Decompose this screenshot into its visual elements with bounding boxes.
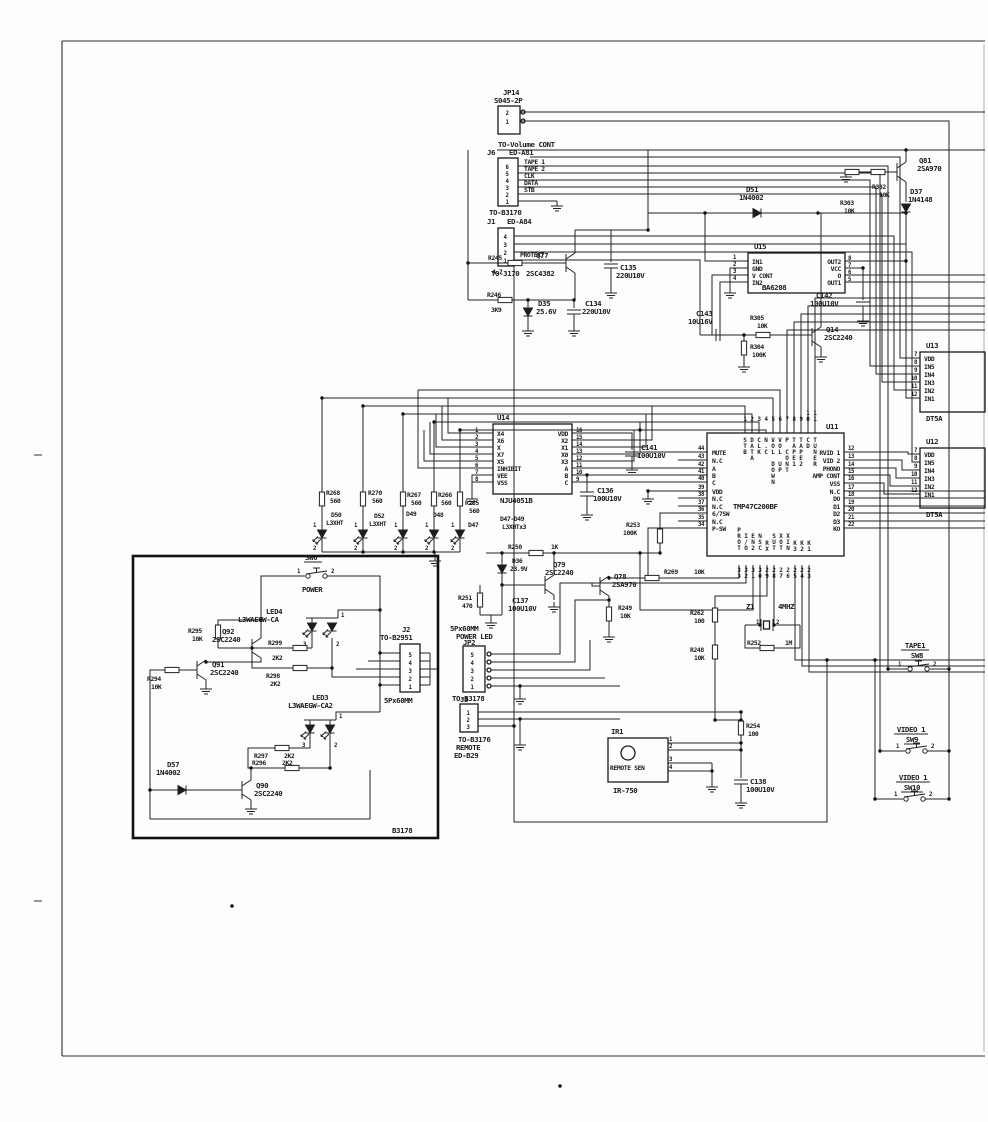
u11-pin1-label: STB [742, 437, 749, 455]
u15-pin4-label: IN2 [752, 279, 763, 287]
sw8-label: TAPE1 [905, 641, 926, 650]
sw10-label: VIDEO 1 [899, 773, 928, 782]
sw10-pin1-num: 1 [894, 792, 898, 798]
r294-ref: R294 [147, 675, 161, 683]
u13-part: DT5A [926, 414, 943, 423]
ground-icon [514, 740, 526, 750]
sw10-switch-symbol [904, 791, 925, 801]
u11-pin24-num: 24 [799, 567, 806, 579]
r270-value: 560 [372, 497, 383, 505]
led3-part: L3WAEGW-CA2 [288, 701, 333, 710]
q81-transistor-symbol [897, 162, 906, 182]
r299-ref: R299 [268, 639, 282, 647]
ir1-sensor-icon [621, 746, 635, 760]
r294-value: 10K [151, 683, 162, 691]
u11-nc43-label: N.C [712, 457, 723, 465]
r270-symbol [360, 492, 365, 506]
j6-note: TO-B3170 [489, 208, 521, 217]
d35-zener-symbol [524, 308, 533, 316]
ground-icon [581, 510, 593, 520]
d50-ref: D50 [331, 511, 342, 519]
r268-symbol [319, 492, 324, 506]
r248-symbol [712, 645, 717, 659]
j2-pin4-num: 4 [408, 661, 412, 667]
ground-icon [603, 632, 615, 642]
d36-zener-symbol [498, 565, 507, 573]
j6-pin1-num: 1 [505, 200, 509, 206]
d52-pin2-num: 2 [354, 546, 357, 552]
jp2-pin5-num: 5 [470, 653, 474, 659]
r295-value: 10K [192, 635, 203, 643]
d37-diode-symbol [902, 204, 911, 212]
u11-pin3-label: CLK [756, 437, 763, 455]
r253-symbol [657, 529, 662, 543]
ground-icon [568, 326, 580, 336]
u11-pin30-label: NSC [757, 533, 764, 551]
schematic-canvas: JP14 S045-2P 2 1 TO-Volume CONT J6 ED-A8… [0, 0, 988, 1122]
r266-ref: R266 [438, 491, 452, 499]
inset-board-ref: B3178 [392, 826, 412, 835]
ground-icon [857, 316, 869, 326]
u11-pin22-num: 22 [848, 522, 854, 528]
u14-vss-label: VSS [497, 479, 508, 487]
u11-pin40-num: 40 [698, 476, 705, 482]
ir1-part: IR-750 [613, 786, 637, 795]
q14-part: 2SC2240 [824, 333, 852, 342]
d52-part: L3XHT [369, 520, 387, 528]
u11-vid2-label: VID 2 [823, 457, 841, 465]
r262-value: 100 [694, 617, 705, 625]
j2-pin3-num: 3 [408, 669, 412, 675]
r302-ref: R302 [872, 183, 886, 191]
u11-pin23-label: K1 [806, 540, 813, 552]
u13-pin9-num: 9 [914, 368, 918, 374]
u12-in4-label: IN4 [924, 467, 935, 475]
component-outlines [133, 106, 985, 838]
u11-pin11-label: TUNER [812, 437, 819, 467]
u11-pin4-label: N.C [763, 437, 770, 455]
u12-pin9-num: 9 [914, 464, 918, 470]
led4-part: L3WAEGW-CA [238, 615, 279, 624]
u13-vdd-label: VDD [924, 355, 935, 363]
c137-value: 100U10V [508, 604, 537, 613]
schematic-labels: JP14 S045-2P 2 1 TO-Volume CONT J6 ED-A8… [147, 88, 943, 835]
r296-ref: R296 [252, 759, 266, 767]
led3-pin1-num: 1 [339, 714, 343, 720]
d48-ref: D48 [433, 511, 444, 519]
u11-pin13-num: 13 [848, 454, 855, 460]
u11-vss-label: VSS [830, 480, 841, 488]
r299-value: 2K2 [272, 654, 283, 662]
r254-symbol [738, 721, 743, 735]
u11-d2-label: D2 [833, 510, 840, 518]
r270-ref: R270 [368, 489, 382, 497]
d52-led-symbol [354, 530, 368, 544]
u11-pin31-label: EN2 [750, 533, 757, 551]
j1-pin2-num: 2 [503, 251, 506, 257]
jp2-pin5-contact-icon [487, 652, 491, 656]
ground-icon [724, 288, 736, 298]
led4-element-a-symbol [303, 623, 317, 637]
u11-c-label: C [712, 479, 716, 487]
r303-value: 10K [844, 207, 855, 215]
ground-icon [245, 804, 257, 814]
d37-part: 1N4148 [908, 195, 932, 204]
ir1-label: REMOTE SEN [610, 764, 645, 772]
u11-pin19-num: 19 [848, 500, 855, 506]
j6-part: ED-A81 [509, 148, 534, 157]
led3-element-b-symbol [321, 725, 335, 739]
u11-pin41-num: 41 [698, 469, 705, 475]
jp14-connector-body [498, 106, 520, 134]
u13-in3-label: IN3 [924, 379, 935, 387]
r253-value: 100K [623, 529, 637, 537]
r254-ref: R254 [746, 722, 760, 730]
r303-symbol [845, 169, 859, 174]
z1-value: 4MHZ [778, 602, 795, 611]
u12-pin10-num: 10 [911, 472, 918, 478]
d35-value: 25.6V [536, 307, 557, 316]
r268-ref: R268 [326, 489, 340, 497]
u14-ref: U14 [497, 413, 510, 422]
c141-value: 100U10V [637, 451, 666, 460]
jp2-note: TO-B3178 [452, 694, 484, 703]
d50-pin1-num: 1 [313, 523, 317, 529]
led4-pin1-num: 1 [341, 613, 345, 619]
d49-pin1-num: 1 [394, 523, 398, 529]
q77-part: 2SC4382 [526, 269, 554, 278]
j2-size: 5Px60MM [384, 696, 413, 705]
u11-pin34-num: 34 [698, 522, 705, 528]
d50-led-symbol [313, 530, 327, 544]
d51-part: 1N4002 [739, 193, 763, 202]
r304-symbol [741, 341, 746, 355]
r245-value: 4.7 [492, 268, 503, 276]
u11-pin29-num: 29 [764, 567, 771, 579]
u12-ref: U12 [926, 437, 938, 446]
sw6-label: POWER [302, 585, 323, 594]
u11-pin28-label: SUT [771, 533, 778, 551]
d48-pin1-num: 1 [425, 523, 429, 529]
r302-value: 10K [879, 191, 890, 199]
c143-value: 10U16V [688, 317, 713, 326]
u11-part: TMP47C200BF [733, 502, 778, 511]
r249-ref: R249 [618, 604, 632, 612]
sw6-pin2-num: 2 [331, 569, 334, 575]
u15-pin1-num: 1 [733, 255, 737, 261]
jp14-pin1-num: 1 [505, 120, 509, 126]
ground-icon [200, 684, 212, 694]
q91-part: 2SC2240 [210, 668, 238, 677]
u14-pin12-num: 12 [576, 456, 582, 462]
u11-pin11-num: 11 [812, 410, 819, 422]
sw6-ref: SW6 [305, 553, 318, 562]
u11-psw-label: P-SW [712, 525, 726, 533]
q77-transistor-symbol [566, 253, 575, 273]
c138-value: 100U10V [746, 785, 775, 794]
u13-pin7-num: 7 [914, 352, 917, 358]
r249-symbol [606, 607, 611, 621]
u11-pin28-num: 28 [771, 567, 778, 579]
u14-pin16-num: 16 [576, 428, 583, 434]
q90-transistor-symbol [242, 780, 251, 800]
r267-ref: R267 [407, 491, 421, 499]
r245-ref: R245 [488, 254, 502, 262]
led4-pin2-num: 2 [336, 642, 339, 648]
j6-ref: J6 [487, 148, 496, 157]
ground-icon [642, 494, 654, 504]
jp2-pin3-contact-icon [487, 668, 491, 672]
u13-in1-label: IN1 [924, 395, 935, 403]
jp2-pin1-contact-icon [487, 684, 491, 688]
r248-ref: R248 [690, 646, 704, 654]
r296-value: 2K2 [282, 759, 293, 767]
r252-ref: R252 [747, 639, 761, 647]
ground-icon [626, 465, 638, 475]
d47-ref: D47 [468, 521, 479, 529]
ground-icon [514, 694, 526, 704]
u11-pin7-num: 7 [785, 417, 788, 423]
u11-pin16-num: 16 [848, 476, 855, 482]
d36-ref: D36 [512, 557, 523, 565]
u13-pin11-num: 11 [911, 384, 918, 390]
jp2-pin2-contact-icon [487, 676, 491, 680]
led4-element-b-symbol [323, 623, 337, 637]
c136-value: 100U10V [593, 494, 622, 503]
q77-ref: Q77 [536, 251, 548, 260]
d47-led-symbol [451, 530, 465, 544]
sw6-pin1-num: 1 [297, 569, 301, 575]
j2-pin2-num: 2 [408, 677, 411, 683]
z1-pin2-num: 2 [776, 620, 779, 626]
r266-value: 560 [441, 499, 452, 507]
d49-pin2-num: 2 [394, 546, 397, 552]
u15-pin5-label: OUT1 [827, 279, 841, 287]
d48-pin2-num: 2 [425, 546, 428, 552]
r262-symbol [712, 608, 717, 622]
u11-pin30-num: 30 [757, 567, 764, 579]
r251-symbol [477, 593, 482, 607]
u11-nc38-label: N.C [712, 495, 723, 503]
jp2-ref: JP2 [463, 638, 475, 647]
ir1-pin1-num: 1 [669, 737, 673, 743]
j1-ref: J1 [487, 217, 496, 226]
ground-icon [551, 201, 563, 211]
z1-crystal-body [764, 621, 770, 629]
u12-in1-label: IN1 [924, 491, 935, 499]
u11-pin33-label: PROT [736, 527, 743, 551]
u11-pin36-num: 36 [698, 507, 705, 513]
u11-pin24-label: K2 [799, 540, 806, 552]
u13-in4-label: IN4 [924, 371, 935, 379]
jp14-part: S045-2P [494, 96, 523, 105]
r265-ref: R265 [465, 499, 479, 507]
r253-ref: R253 [626, 521, 640, 529]
u11-67sw-label: 6/7SW [712, 510, 730, 518]
u11-pin25-label: K3 [792, 540, 799, 552]
r251-value: 470 [462, 602, 473, 610]
r254-value: 100 [748, 730, 759, 738]
d52-pin1-num: 1 [354, 523, 358, 529]
u11-pin39-num: 39 [698, 485, 705, 491]
r298-symbol [293, 665, 307, 670]
j1-part: ED-A84 [507, 217, 532, 226]
u11-pin17-num: 17 [848, 485, 854, 491]
u11-pin10-num: 10 [805, 410, 812, 422]
r304-value: 100K [752, 351, 766, 359]
d47-pin1-num: 1 [451, 523, 455, 529]
r246-ref: R246 [487, 291, 501, 299]
r294-symbol [165, 667, 179, 672]
jp2-pin1-num: 1 [470, 685, 474, 691]
sw6-switch-symbol [306, 568, 327, 578]
r305-ref: R305 [750, 314, 764, 322]
u11-pin23-num: 23 [806, 567, 813, 579]
u13-in5-label: IN5 [924, 363, 935, 371]
r250-value: 1K [551, 543, 558, 551]
sw9-switch-symbol [906, 743, 927, 753]
u11-pin5-label: VOL DOWN [770, 437, 777, 485]
u14-c-label: C [565, 479, 569, 487]
r269-ref: R269 [664, 568, 678, 576]
u13-pin10-num: 10 [911, 376, 918, 382]
u11-pin7-label: P CONT [784, 437, 791, 473]
j3-ref: J3 [460, 695, 468, 704]
ir1-ref: IR1 [611, 727, 624, 736]
jp2-pin4-num: 4 [470, 661, 474, 667]
r302-symbol [871, 169, 885, 174]
u13-pin8-num: 8 [914, 360, 918, 366]
ground-icon [605, 288, 617, 298]
u14-pin14-num: 14 [576, 442, 583, 448]
jp2-pin3-num: 3 [470, 669, 474, 675]
u11-pin32-num: 32 [743, 567, 750, 579]
u11-pin10-label: CD [805, 437, 812, 449]
u11-pin20-num: 20 [848, 507, 855, 513]
d36-value: 23.9V [510, 565, 528, 573]
ir1-receiver-body [608, 738, 668, 782]
r305-symbol [756, 332, 770, 337]
j3-pin1-num: 1 [466, 711, 470, 717]
c142-value: 100U10V [810, 299, 839, 308]
d49-led-symbol [394, 530, 408, 544]
u13-pin12-num: 12 [911, 392, 917, 398]
u11-rvid1-label: RVID 1 [819, 449, 840, 457]
u14-pin10-num: 10 [576, 470, 583, 476]
ground-icon [548, 602, 560, 612]
r250-ref: R250 [508, 543, 522, 551]
q79-transistor-symbol [545, 575, 554, 595]
u11-pin5-num: 5 [771, 417, 775, 423]
jp2-pin4-contact-icon [487, 660, 491, 664]
led-group-refs: D47-D49 [500, 515, 525, 523]
j6-pin2-num: 2 [505, 193, 508, 199]
r249-value: 10K [620, 612, 631, 620]
u11-pin8-num: 8 [792, 417, 796, 423]
u12-part: DT5A [926, 510, 943, 519]
d57-diode-symbol [178, 786, 186, 795]
j1-pin3-num: 3 [503, 243, 507, 249]
r298-value: 2K2 [270, 680, 281, 688]
q78-part: 2SA970 [612, 580, 636, 589]
u12-vdd-label: VDD [924, 451, 935, 459]
u11-pin6-label: VOL UP [777, 437, 784, 473]
u11-ampcont-label: AMP CONT [812, 472, 840, 480]
u11-pin35-num: 35 [698, 515, 705, 521]
ground-icon [735, 798, 747, 808]
u11-pin26-label: XIN [785, 533, 792, 551]
q79-part: 2SC2240 [545, 568, 573, 577]
r297-symbol [275, 745, 289, 750]
q92-part: 2SC2240 [212, 635, 240, 644]
r266-symbol [431, 492, 436, 506]
r265-symbol [457, 492, 462, 506]
u12-pin8-num: 8 [914, 456, 918, 462]
u14-pin2-num: 2 [475, 435, 478, 441]
j3-pin3-num: 3 [466, 725, 470, 731]
r250-symbol [529, 550, 543, 555]
u11-pin2-num: 2 [750, 417, 753, 423]
u12-in2-label: IN2 [924, 483, 935, 491]
r251-ref: R251 [458, 594, 472, 602]
ir1-pin4-num: 4 [669, 765, 673, 771]
r305-value: 10K [757, 322, 768, 330]
u12-pin11-num: 11 [911, 480, 918, 486]
j6-pin3-num: 3 [505, 186, 509, 192]
j3-dest: ED-B29 [454, 751, 478, 760]
c134-value: 220U10V [582, 307, 611, 316]
u15-pin2-num: 2 [733, 262, 736, 268]
j1-pin1-num: 1 [503, 259, 507, 265]
u11-mute-label: MUTE [712, 449, 726, 457]
u13-in2-label: IN2 [924, 387, 935, 395]
r268-value: 560 [330, 497, 341, 505]
u12-pin7-num: 7 [914, 448, 917, 454]
d52-ref: D52 [374, 512, 385, 520]
u11-pin6-num: 6 [778, 417, 782, 423]
ground-icon [815, 352, 827, 362]
ir1-pin2-num: 2 [669, 744, 672, 750]
u11-pin43-num: 43 [698, 454, 705, 460]
r265-value: 560 [469, 507, 480, 515]
d51-diode-symbol [753, 209, 761, 218]
u14-pin13-num: 13 [576, 449, 583, 455]
sw8-pin2-num: 2 [933, 662, 936, 668]
u11-pin4-num: 4 [764, 417, 768, 423]
u13-ref: U13 [926, 341, 938, 350]
u14-pin15-num: 15 [576, 435, 583, 441]
j2-pin5-num: 5 [408, 653, 412, 659]
u15-part: BA6208 [762, 283, 786, 292]
ground-icon [706, 782, 718, 792]
u11-pin21-num: 21 [848, 515, 855, 521]
r252-symbol [760, 645, 774, 650]
sw8-ref: SW8 [911, 651, 923, 660]
jp14-pin2-num: 2 [505, 111, 508, 117]
j2-note: TO-B2951 [380, 633, 413, 642]
u11-pin9-num: 9 [799, 417, 803, 423]
r267-value: 560 [411, 499, 422, 507]
r252-value: 1M [785, 639, 792, 647]
ground-icon [522, 326, 534, 336]
u14-pin11-num: 11 [576, 463, 583, 469]
u11-ref: U11 [826, 422, 839, 431]
u12-in5-label: IN5 [924, 459, 935, 467]
q90-part: 2SC2240 [254, 789, 282, 798]
u11-pin8-label: TAPE1 [791, 437, 798, 467]
q81-part: 2SA970 [917, 164, 941, 173]
u11-pin31-num: 31 [750, 567, 757, 579]
